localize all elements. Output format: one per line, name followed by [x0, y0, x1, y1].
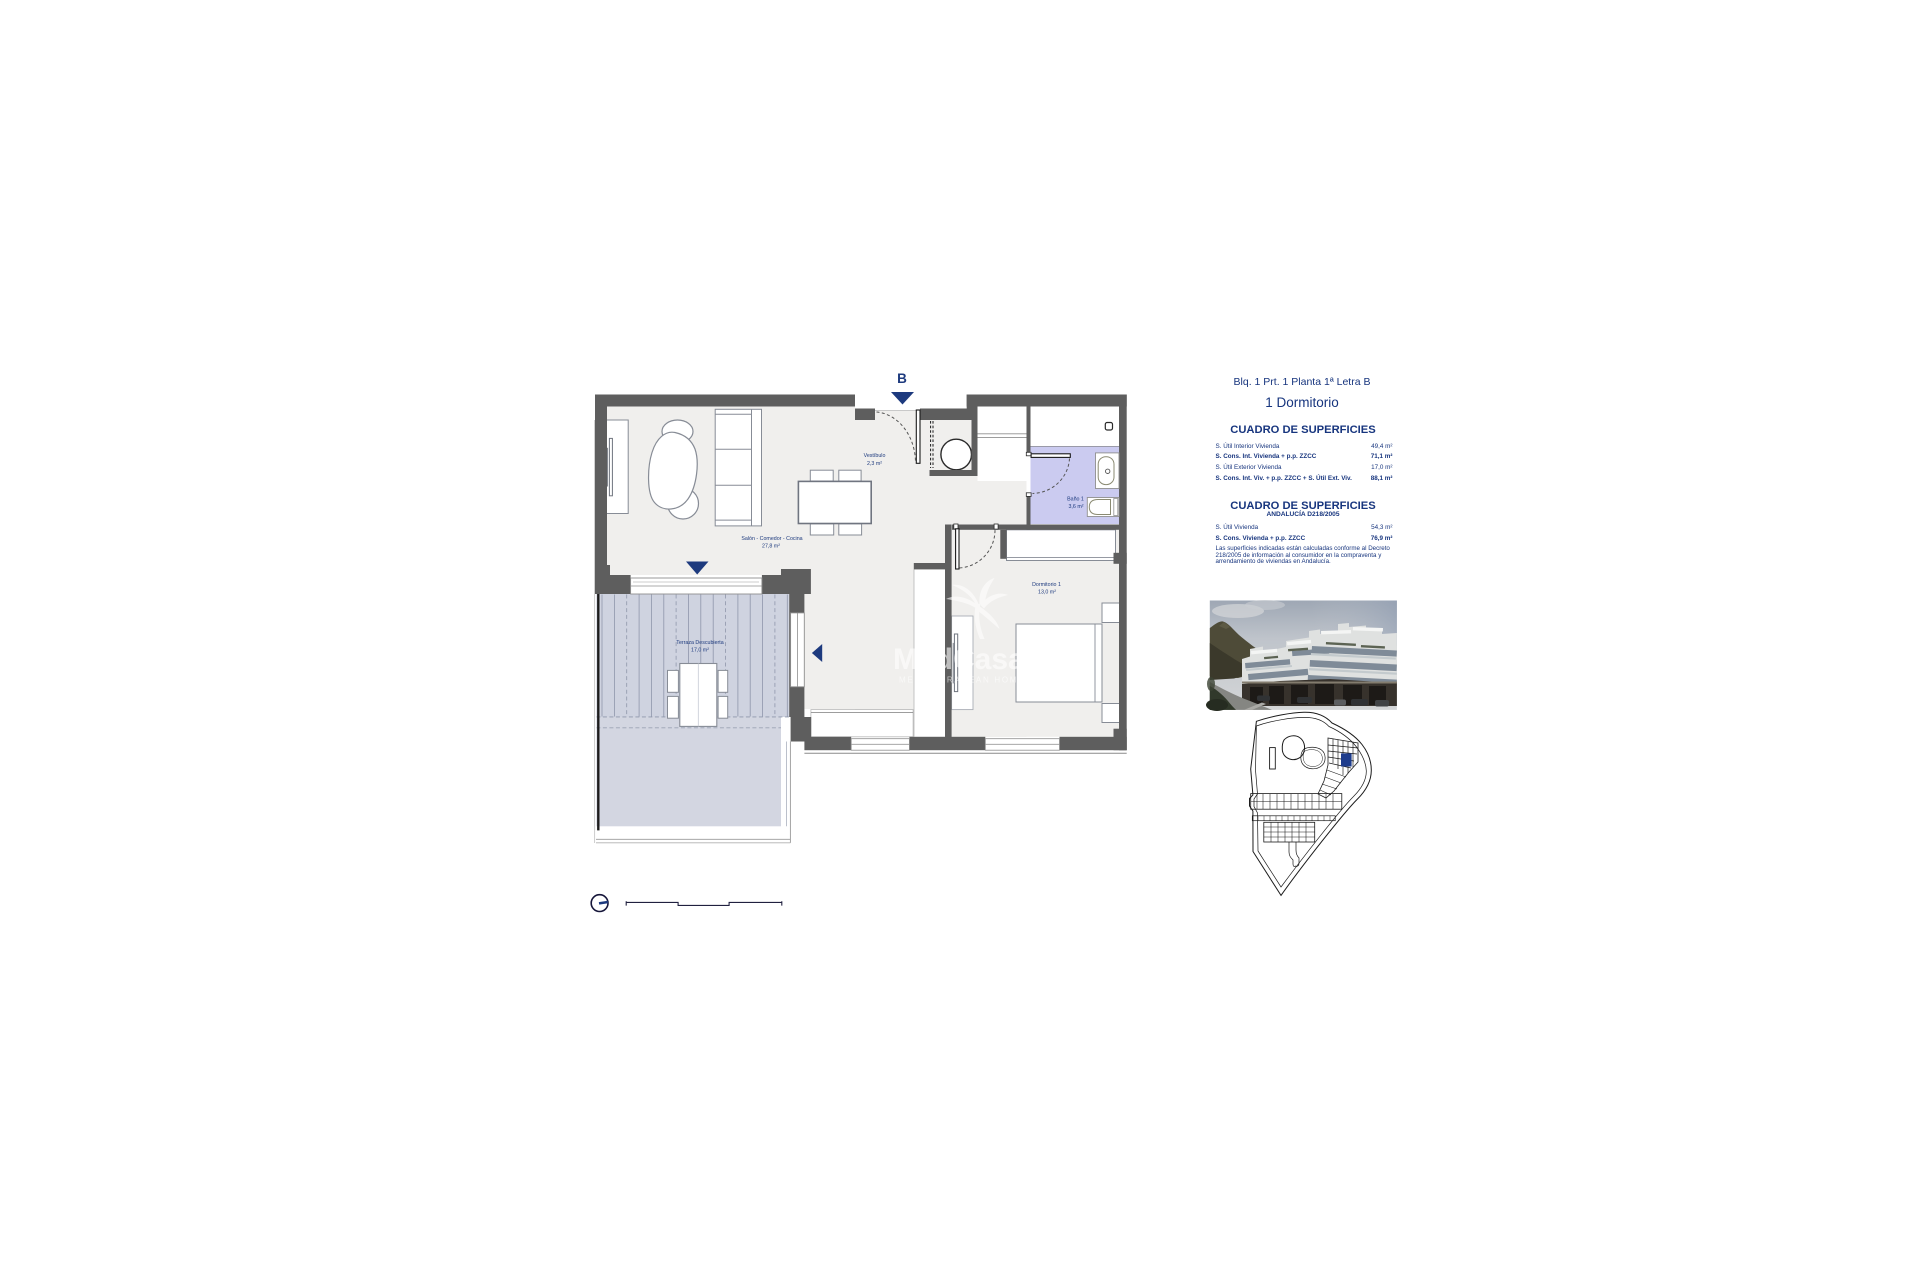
svg-text:Salón - Comedor - Cocina: Salón - Comedor - Cocina: [741, 536, 802, 542]
svg-text:Terraza Descubierta: Terraza Descubierta: [676, 640, 723, 646]
svg-text:MedCasas: MedCasas: [893, 643, 1041, 676]
svg-text:13,0 m²: 13,0 m²: [1038, 590, 1056, 596]
svg-text:Baño 1: Baño 1: [1067, 497, 1084, 503]
svg-text:2,3 m²: 2,3 m²: [867, 461, 882, 467]
svg-text:3,6 m²: 3,6 m²: [1068, 504, 1083, 510]
svg-text:Vestíbulo: Vestíbulo: [864, 453, 886, 459]
svg-text:MEDITERRANEAN HOMES: MEDITERRANEAN HOMES: [899, 676, 1032, 685]
svg-text:Dormitorio 1: Dormitorio 1: [1032, 582, 1061, 588]
svg-text:17,0 m²: 17,0 m²: [691, 648, 709, 654]
svg-text:27,8 m²: 27,8 m²: [762, 544, 780, 550]
svg-text:B: B: [897, 371, 907, 386]
